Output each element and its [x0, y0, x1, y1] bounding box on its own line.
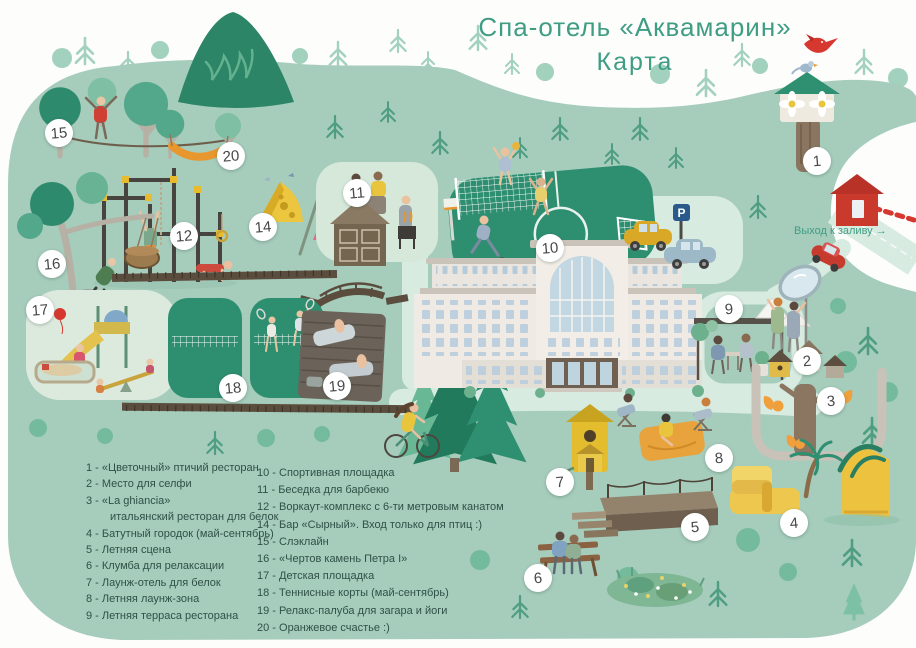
legend-column-2: 10 - Спортивная площадка 11 - Беседка дл… — [257, 465, 504, 637]
legend-item: 3 - «La ghiancia»итальянский ресторан дл… — [86, 493, 278, 526]
legend-item: 15 - Слэклайн — [257, 534, 504, 551]
mountain — [178, 12, 294, 108]
legend-item: 11 - Беседка для барбекю — [257, 482, 504, 499]
bbq-gazebo — [316, 162, 438, 266]
legend-item: 7 - Лаунж-отель для белок — [86, 575, 278, 591]
parking-sign: P — [673, 204, 690, 221]
legend-item: 16 - «Чертов камень Петра I» — [257, 551, 504, 568]
page-title: Спа-отель «Аквамарин» — [430, 12, 840, 43]
legend-item: 20 - Оранжевое счастье :) — [257, 620, 504, 637]
legend-item: 4 - Батутный городок (май-сентябрь) — [86, 526, 278, 542]
legend-item: 8 - Летняя лаунж-зона — [86, 591, 278, 607]
legend-item: 17 - Детская площадка — [257, 568, 504, 585]
legend-column-1: 1 - «Цветочный» птичий ресторан 2 - Мест… — [86, 460, 278, 624]
legend-item: 10 - Спортивная площадка — [257, 465, 504, 482]
hotel-building — [414, 240, 704, 398]
legend-item: 19 - Релакс-палуба для загара и йоги — [257, 603, 504, 620]
legend-item: 18 - Теннисные корты (май-сентябрь) — [257, 585, 504, 602]
exit-to-bay-label: Выход к заливу → — [794, 225, 914, 237]
page-subtitle: Карта — [430, 48, 840, 77]
legend-item: 9 - Летняя терраса ресторана — [86, 608, 278, 624]
legend-item: 6 - Клумба для релаксации — [86, 558, 278, 574]
legend-item: 12 - Воркаут-комплекс с 6-ти метровым ка… — [257, 499, 504, 516]
legend-item: 5 - Летняя сцена — [86, 542, 278, 558]
legend-item: 14 - Бар «Сырный». Вход только для птиц … — [257, 517, 504, 534]
spa-hotel-map: Спа-отель «Аквамарин» Карта P Выход к за… — [0, 0, 916, 648]
legend-item: 2 - Место для селфи — [86, 476, 278, 492]
legend-item: 1 - «Цветочный» птичий ресторан — [86, 460, 278, 476]
